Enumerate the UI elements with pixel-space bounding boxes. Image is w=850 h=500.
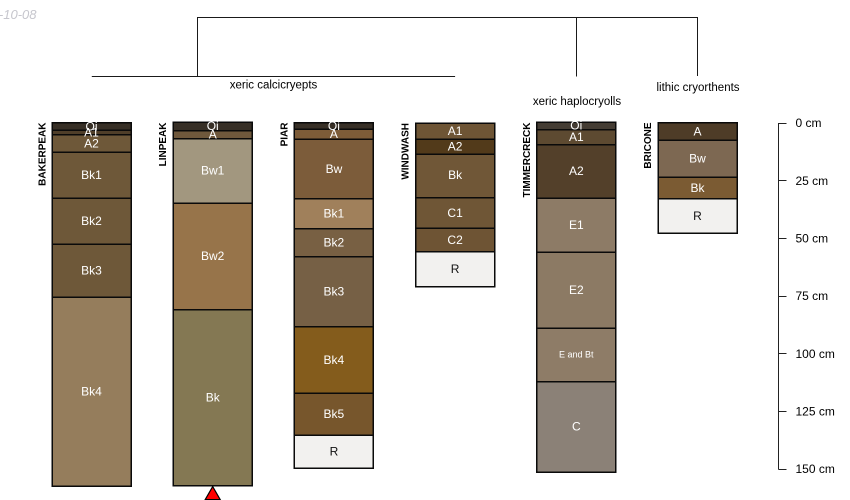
svg-text:A1: A1 [569, 130, 584, 144]
svg-text:125 cm: 125 cm [796, 405, 835, 419]
svg-text:Bw: Bw [326, 162, 343, 176]
svg-text:C: C [572, 420, 581, 434]
svg-text:Bk1: Bk1 [81, 168, 102, 182]
svg-text:E2: E2 [569, 283, 584, 297]
svg-text:A: A [693, 124, 701, 138]
svg-text:100 cm: 100 cm [796, 347, 835, 361]
svg-text:R: R [451, 262, 460, 276]
svg-text:E1: E1 [569, 218, 584, 232]
svg-text:Bk2: Bk2 [324, 236, 345, 250]
svg-text:xeric calcicryepts: xeric calcicryepts [230, 80, 318, 92]
svg-text:C1: C1 [447, 206, 463, 220]
svg-text:xeric haplocryolls: xeric haplocryolls [533, 96, 621, 108]
svg-text:75 cm: 75 cm [796, 289, 829, 303]
svg-text:R: R [330, 445, 339, 459]
svg-text:Bk: Bk [206, 390, 221, 404]
svg-text:TIMMERCRECK: TIMMERCRECK [522, 122, 533, 198]
svg-text:WINDWASH: WINDWASH [401, 123, 412, 180]
svg-text:Bk5: Bk5 [324, 407, 345, 421]
svg-text:Bk: Bk [448, 168, 463, 182]
svg-text:E and Bt: E and Bt [559, 350, 594, 360]
svg-text:Bk2: Bk2 [81, 214, 102, 228]
svg-text:150 cm: 150 cm [796, 462, 835, 476]
svg-text:A2: A2 [569, 164, 584, 178]
svg-text:A: A [209, 127, 217, 141]
svg-text:BRICONE: BRICONE [643, 122, 654, 168]
svg-text:A2: A2 [84, 136, 99, 150]
svg-text:A2: A2 [448, 140, 463, 154]
svg-text:R: R [693, 209, 702, 223]
svg-text:Bk4: Bk4 [324, 353, 345, 367]
svg-text:LINPEAK: LINPEAK [158, 122, 169, 167]
svg-text:A: A [330, 127, 338, 141]
svg-text:Bw2: Bw2 [201, 249, 225, 263]
svg-text:A1: A1 [448, 124, 463, 138]
svg-text:Bk1: Bk1 [324, 207, 345, 221]
svg-text:Bw1: Bw1 [201, 164, 225, 178]
svg-text:Bk4: Bk4 [81, 385, 102, 399]
svg-text:Bk: Bk [690, 181, 705, 195]
svg-text:50 cm: 50 cm [796, 232, 829, 246]
svg-text:2025-10-08: 2025-10-08 [0, 7, 37, 22]
svg-text:lithic cryorthents: lithic cryorthents [656, 82, 739, 94]
svg-text:C2: C2 [447, 233, 463, 247]
svg-text:PIAR: PIAR [279, 122, 290, 147]
svg-text:Bk3: Bk3 [81, 264, 102, 278]
svg-text:Bw: Bw [689, 152, 706, 166]
svg-text:0 cm: 0 cm [796, 116, 822, 130]
svg-text:Bk3: Bk3 [324, 285, 345, 299]
svg-text:25 cm: 25 cm [796, 174, 829, 188]
svg-text:BAKERPEAK: BAKERPEAK [38, 122, 49, 186]
